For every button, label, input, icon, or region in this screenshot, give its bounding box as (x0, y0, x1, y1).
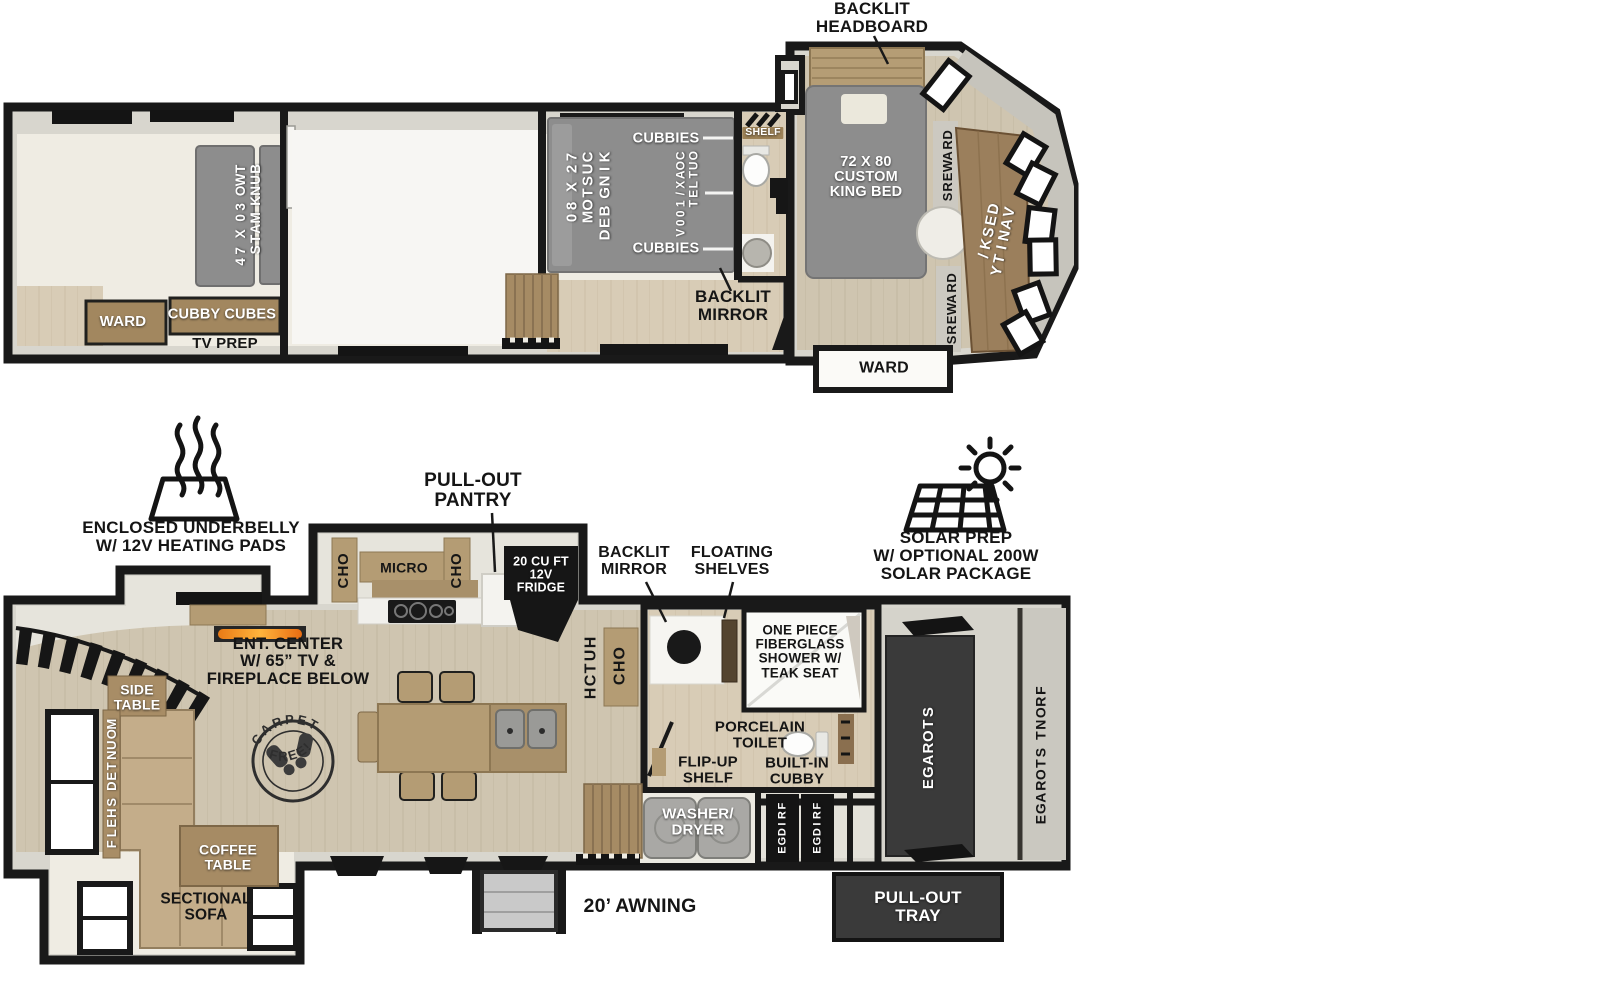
cubbies-bottom-label: CUBBIES (633, 241, 700, 256)
built-in-cubby-label: BUILT-IN CUBBY (765, 755, 829, 787)
front-king-bed-label: 72 X 80 CUSTOM KING BED (830, 155, 903, 201)
ward-bunk-label: WARD (100, 314, 147, 330)
tv-prep-label: TV PREP (192, 336, 258, 352)
drawers-top-label: DRAWERS (941, 130, 954, 203)
storage-label: STORAGE (921, 706, 936, 790)
label-layer: BACKLIT HEADBOARD TWO 30 X 74BUNK MATS W… (0, 0, 1600, 990)
backlit-headboard-callout: BACKLIT HEADBOARD (816, 0, 928, 36)
floating-shelves-label: FLOATING SHELVES (691, 545, 773, 579)
fridge-20cuft-label: 20 CU FT 12V FRIDGE (513, 555, 569, 594)
shower-label: ONE PIECE FIBERGLASS SHOWER W/ TEAK SEAT (755, 624, 844, 681)
ohc-right-label: OHC (449, 553, 464, 589)
backlit-mirror-upper-label: BACKLIT MIRROR (695, 288, 771, 324)
solar-callout: SOLAR PREP W/ OPTIONAL 200W SOLAR PACKAG… (873, 529, 1038, 583)
cubbies-top-label: CUBBIES (633, 131, 700, 146)
coffee-table-label: COFFEE TABLE (199, 842, 257, 871)
ohc-hutch-label: OHC (613, 647, 629, 685)
side-table-label: SIDE TABLE (114, 682, 161, 711)
fridge-left-label: FRIDGE (777, 802, 788, 855)
hutch-label: HUTCH (584, 636, 600, 700)
sectional-sofa-label: SECTIONAL SOFA (160, 892, 251, 925)
pantry-callout: PULL-OUT PANTRY (424, 471, 522, 511)
front-storage-label: FRONT STORAGE (1034, 685, 1048, 825)
pull-out-tray-label: PULL-OUT TRAY (874, 889, 962, 925)
desk-vanity-label: DESK/VANITY (973, 202, 1019, 279)
ent-center-label: ENT. CENTER W/ 65” TV & FIREPLACE BELOW (207, 636, 370, 688)
coax-outlet-label: COAX/100VOUTLET (675, 151, 700, 237)
ward-front-label: WARD (859, 361, 909, 378)
mid-king-bed-label: 72 X 80CUSTOMKING BED (565, 151, 613, 241)
micro-label: MICRO (380, 561, 428, 576)
cubby-cubes-label: CUBBY CUBES (168, 307, 276, 322)
backlit-mirror-lower-label: BACKLIT MIRROR (598, 545, 670, 579)
shelf-label: SHELF (742, 127, 783, 139)
rv-floorplan-page: CARPET FREE! BACKLIT HEADBOARD TWO 30 X … (0, 0, 1600, 990)
fridge-right-label: FRIDGE (812, 802, 823, 855)
bunk-mats-label: TWO 30 X 74BUNK MATS (235, 163, 264, 266)
awning-label: 20’ AWNING (584, 896, 697, 916)
washer-dryer-label: WASHER/ DRYER (662, 806, 733, 838)
mounted-shelf-label: MOUNTED SHELF (105, 719, 118, 849)
drawers-bottom-label: DRAWERS (945, 273, 958, 346)
ohc-left-label: OHC (336, 553, 351, 589)
flip-up-shelf-label: FLIP-UP SHELF (678, 754, 738, 786)
underbelly-callout: ENCLOSED UNDERBELLY W/ 12V HEATING PADS (82, 519, 300, 555)
porcelain-toilet-label: PORCELAIN TOILET (715, 719, 805, 751)
